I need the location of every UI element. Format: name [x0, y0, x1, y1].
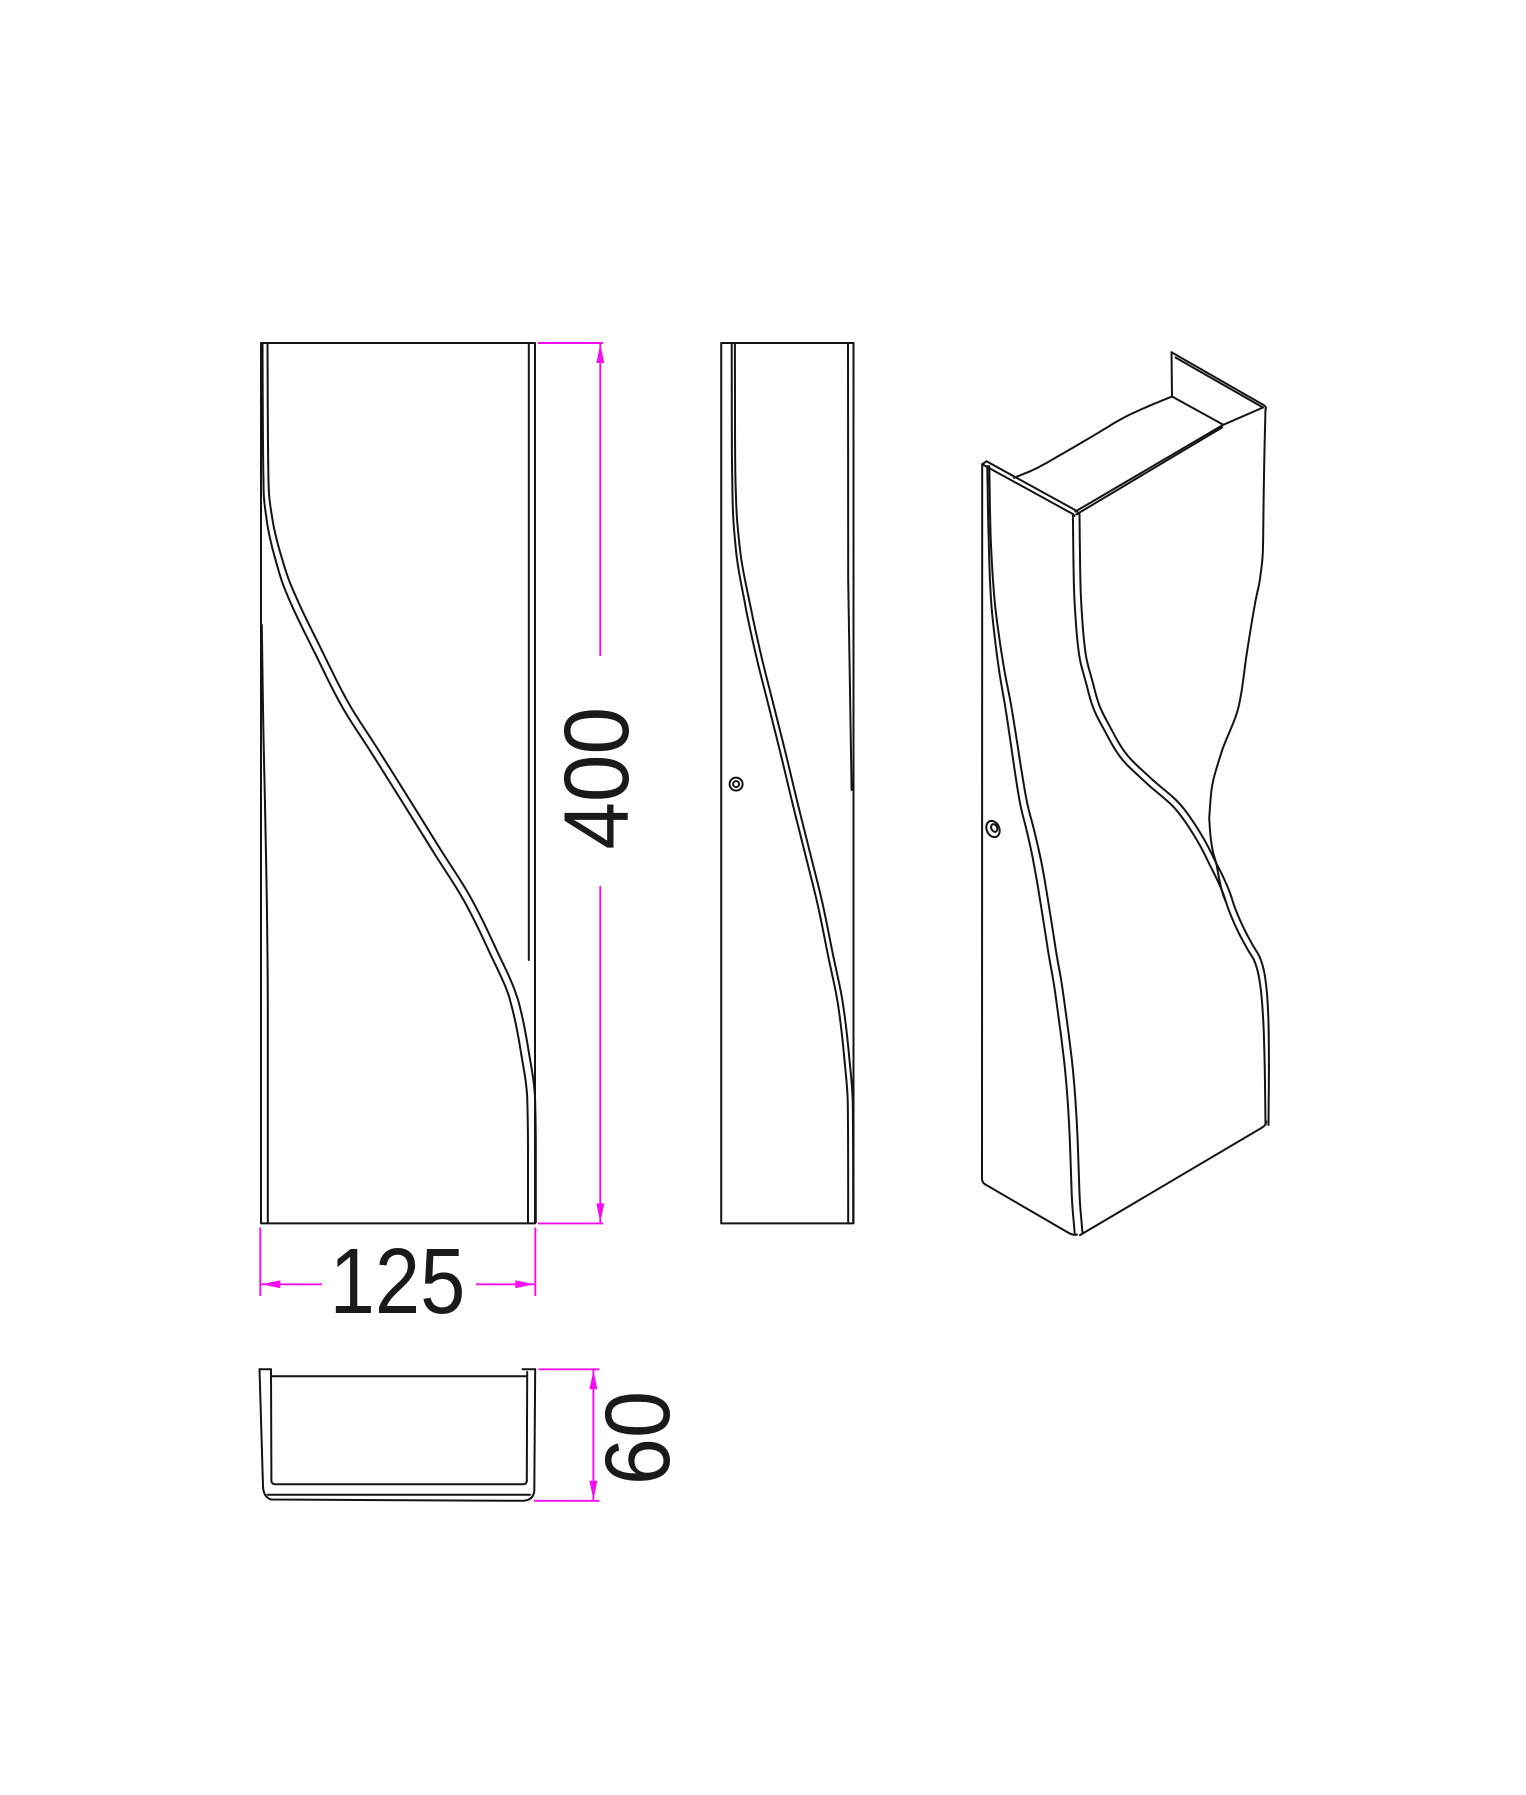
svg-text:400: 400 [545, 707, 648, 850]
svg-text:125: 125 [330, 1229, 466, 1333]
svg-text:60: 60 [586, 1391, 689, 1485]
